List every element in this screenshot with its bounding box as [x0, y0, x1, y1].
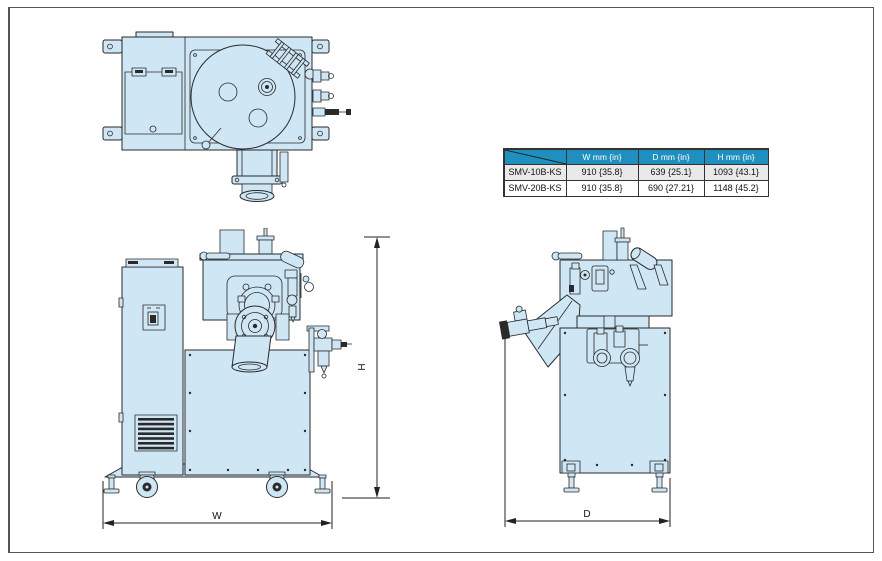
spec-row-w: 910 {35.8}	[566, 180, 639, 197]
front-view-body	[104, 228, 352, 498]
foot-left	[104, 475, 119, 493]
bowl-hub	[259, 79, 276, 96]
diagonal-divider	[505, 150, 566, 164]
spec-table-header-w: W mm {in}	[566, 149, 639, 165]
louver-vent	[135, 415, 177, 451]
spec-row-d: 639 {25.1}	[638, 164, 705, 181]
top-view-drawing	[98, 24, 356, 206]
spec-table: W mm {in} D mm {in} H mm {in} SMV-10B-KS…	[503, 148, 769, 197]
side-foot-left	[564, 473, 579, 492]
side-view-body	[497, 228, 672, 492]
foot-right	[315, 475, 330, 493]
w-dimension-label: W	[212, 511, 222, 522]
machine-dimension-sheet: W H	[0, 0, 882, 561]
top-view-body	[103, 32, 351, 202]
spec-row-h: 1093 {43.1}	[704, 164, 769, 181]
spec-table-header-h: H mm {in}	[704, 149, 769, 165]
side-foot-right	[652, 473, 667, 492]
discharge-port	[232, 150, 288, 202]
side-valves	[313, 70, 351, 116]
h-dimension: H	[342, 237, 390, 498]
spec-row-w: 910 {35.8}	[566, 164, 639, 181]
spec-table-corner-cell	[504, 149, 567, 165]
discharge-cylinder	[232, 336, 271, 372]
h-dimension-label: H	[357, 363, 368, 370]
spec-row-h: 1148 {45.2}	[704, 180, 769, 197]
spec-table-header-d: D mm {in}	[638, 149, 705, 165]
spec-row-d: 690 {27.21}	[638, 180, 705, 197]
side-view-drawing: D	[492, 225, 692, 535]
d-dimension-label: D	[583, 509, 590, 520]
spec-row-model: SMV-20B-KS	[504, 180, 567, 197]
front-view-drawing: W H	[60, 228, 392, 536]
frl-unit	[307, 326, 352, 378]
breaker-panel	[143, 305, 165, 330]
mixer-head	[200, 228, 314, 346]
spec-row-model: SMV-10B-KS	[504, 164, 567, 181]
